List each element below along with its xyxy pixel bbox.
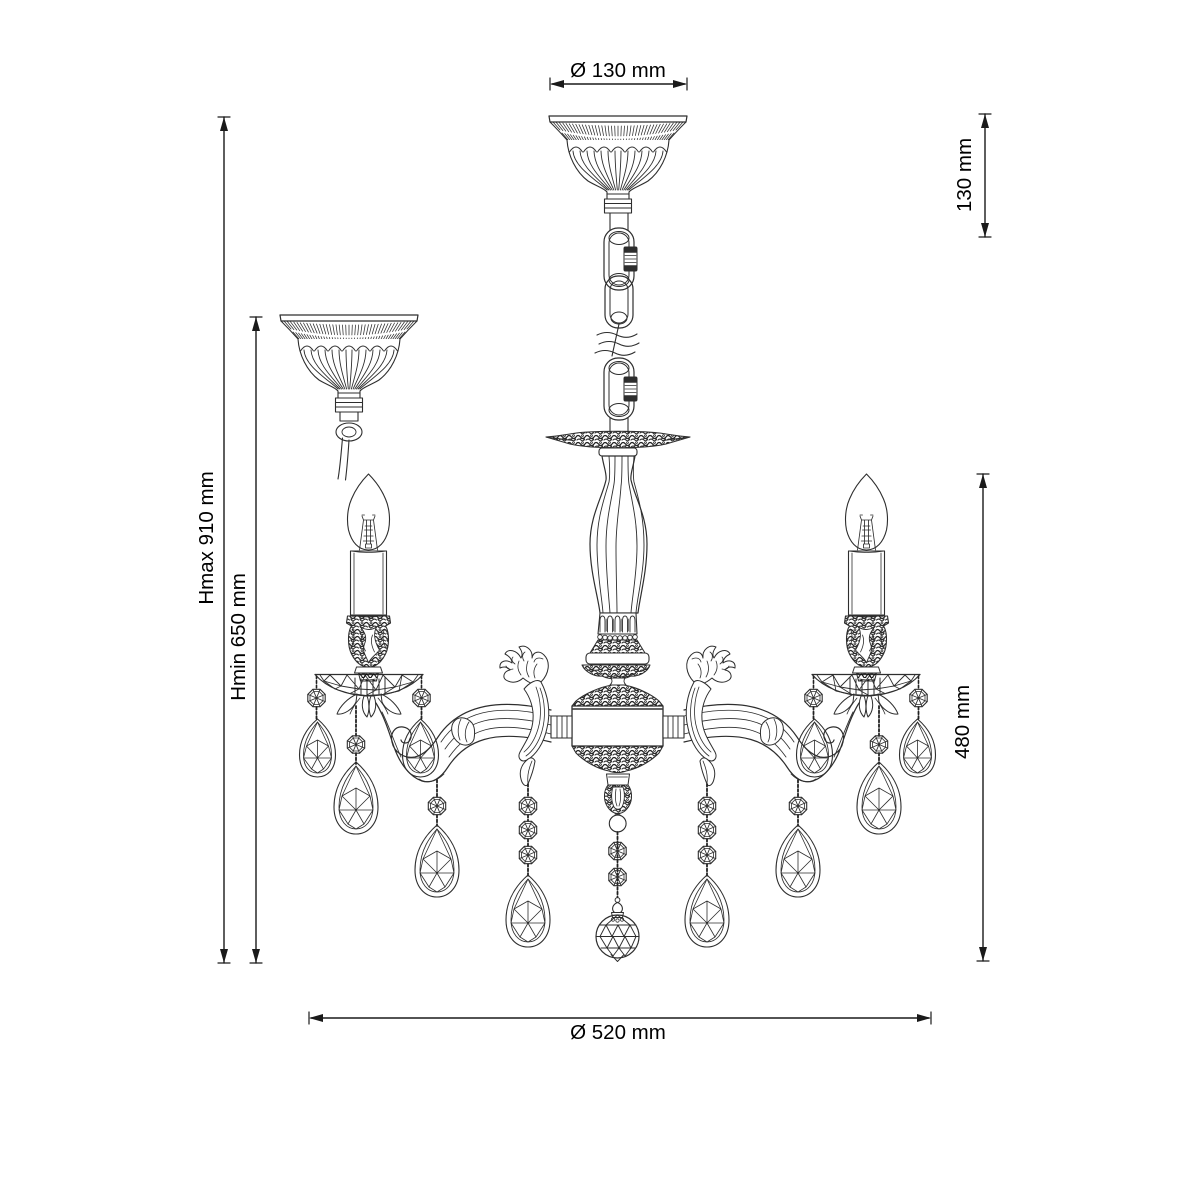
svg-text:Hmax 910 mm: Hmax 910 mm xyxy=(195,471,218,604)
svg-text:Ø 130 mm: Ø 130 mm xyxy=(570,59,666,82)
svg-text:480 mm: 480 mm xyxy=(951,685,974,759)
svg-text:Ø 520 mm: Ø 520 mm xyxy=(570,1021,666,1044)
svg-text:Hmin 650 mm: Hmin 650 mm xyxy=(227,573,250,701)
svg-text:130 mm: 130 mm xyxy=(953,138,976,212)
